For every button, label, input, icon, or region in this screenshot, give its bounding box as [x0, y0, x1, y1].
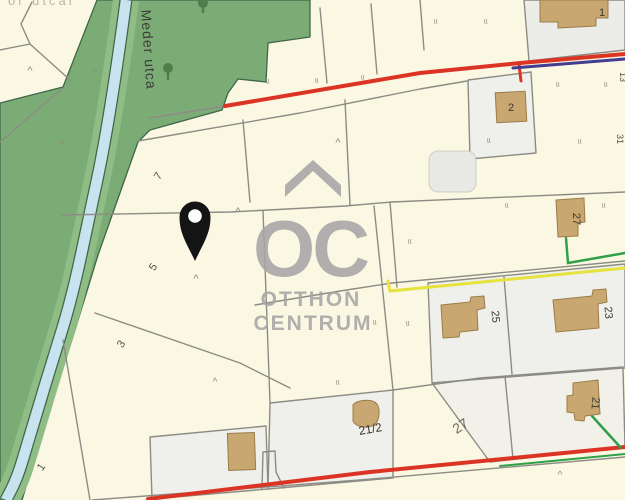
watermark-centrum: CENTRUM: [254, 312, 373, 335]
house-number: 31: [615, 134, 625, 144]
caret-mark: ^: [213, 377, 218, 388]
corner-partial-label: or utcai: [8, 0, 75, 8]
caret-mark: ^: [235, 206, 241, 218]
line-yellow-tail: [388, 281, 390, 291]
map-canvas[interactable]: OC OTTHON CENTRUM Meder utcaor utcai7531…: [0, 0, 625, 500]
house-number: 23: [601, 306, 614, 319]
house-number: 21: [588, 397, 601, 410]
watermark-oc: OC: [253, 204, 368, 293]
caret-mark: ^: [558, 470, 563, 481]
watermark-otthon: OTTHON: [261, 288, 362, 311]
house-number: 25: [488, 310, 501, 323]
caret-mark: ^: [92, 67, 98, 79]
map-viewport[interactable]: OC OTTHON CENTRUM Meder utcaor utcai7531…: [0, 0, 625, 500]
building: [227, 433, 255, 471]
house-number: 27: [570, 213, 582, 225]
caret-mark: ^: [27, 65, 33, 77]
house-number: 2: [508, 102, 514, 114]
building-grey: [429, 151, 476, 192]
caret-mark: ^: [335, 137, 341, 149]
house-number: 1: [599, 7, 605, 19]
house-number: 13: [618, 72, 625, 82]
caret-mark: ^: [193, 273, 199, 285]
caret-mark: ^: [59, 139, 65, 151]
